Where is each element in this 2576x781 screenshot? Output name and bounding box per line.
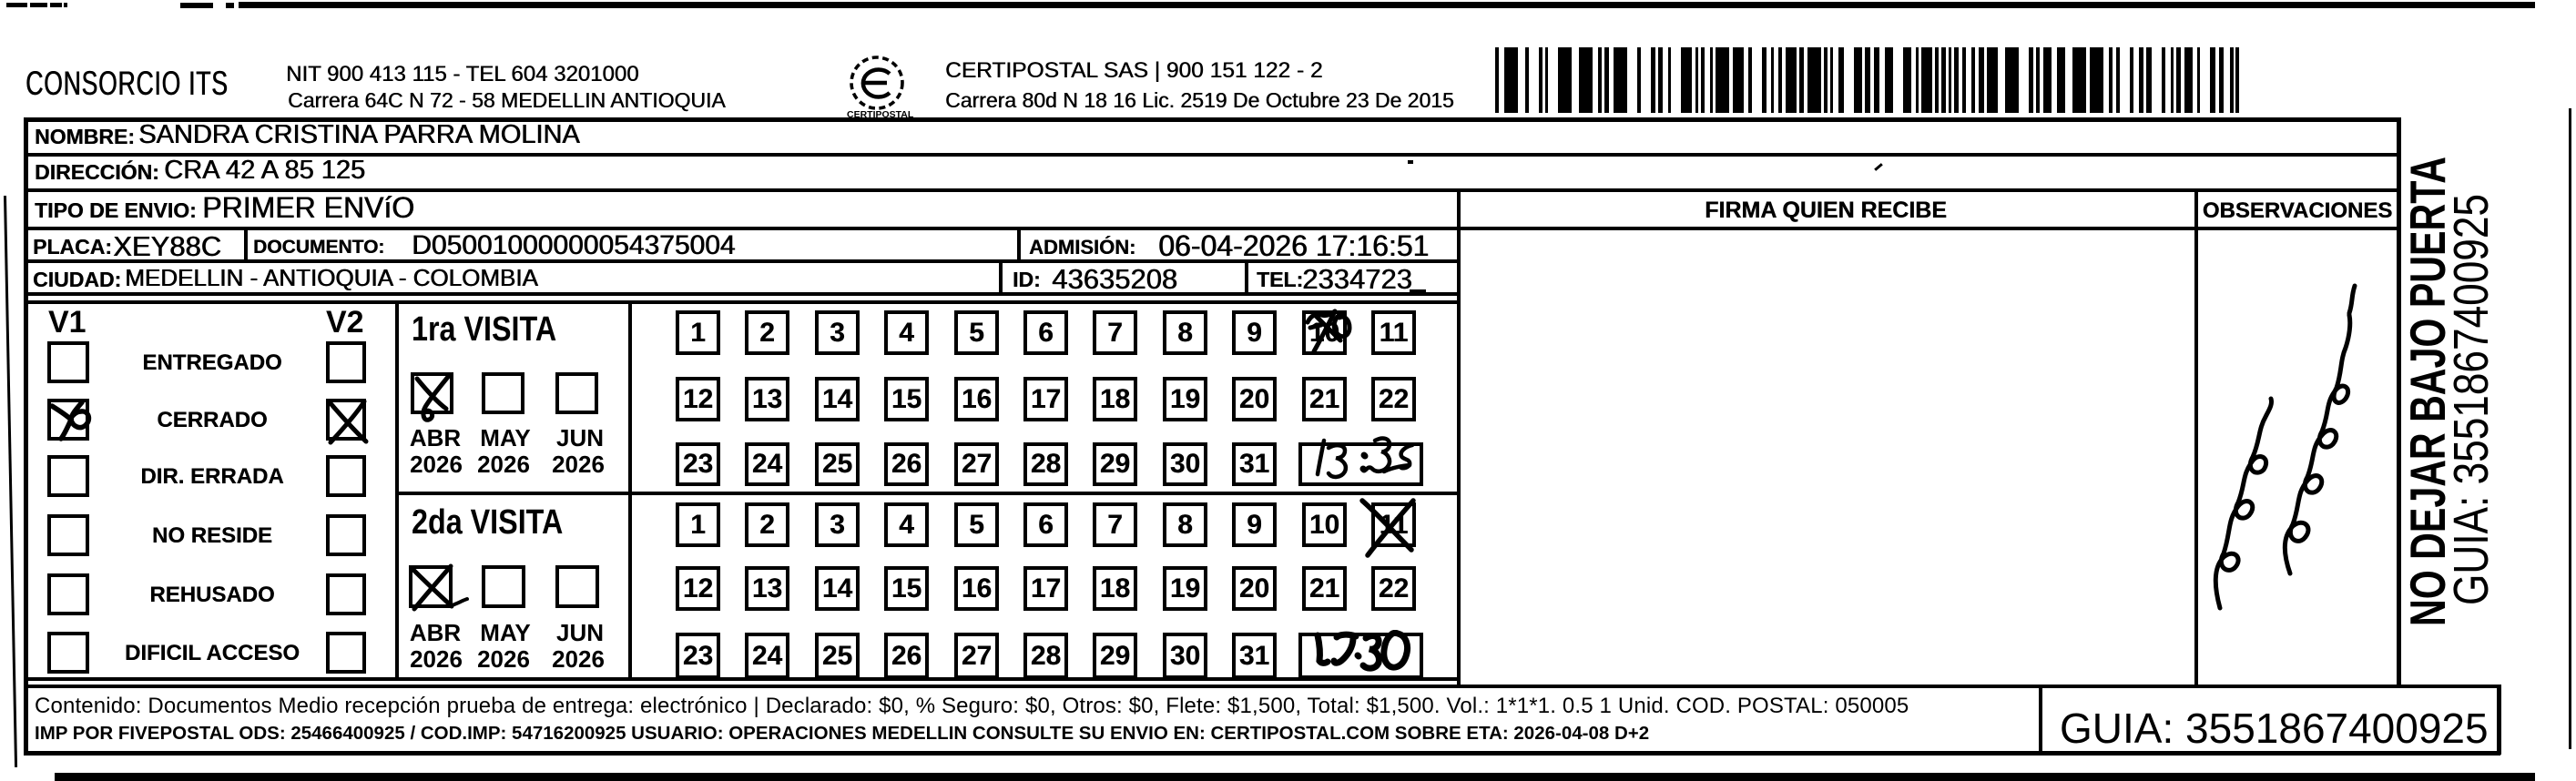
svg-text:GUIA: 3551867400925: GUIA: 3551867400925 [2444,194,2499,605]
